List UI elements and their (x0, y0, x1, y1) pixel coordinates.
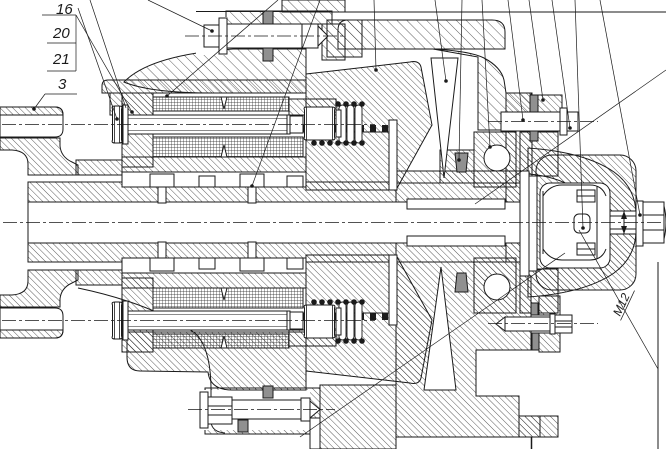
svg-text:20: 20 (52, 25, 70, 42)
svg-text:21: 21 (52, 51, 70, 68)
svg-text:16: 16 (56, 1, 73, 18)
svg-text:3: 3 (58, 76, 67, 93)
